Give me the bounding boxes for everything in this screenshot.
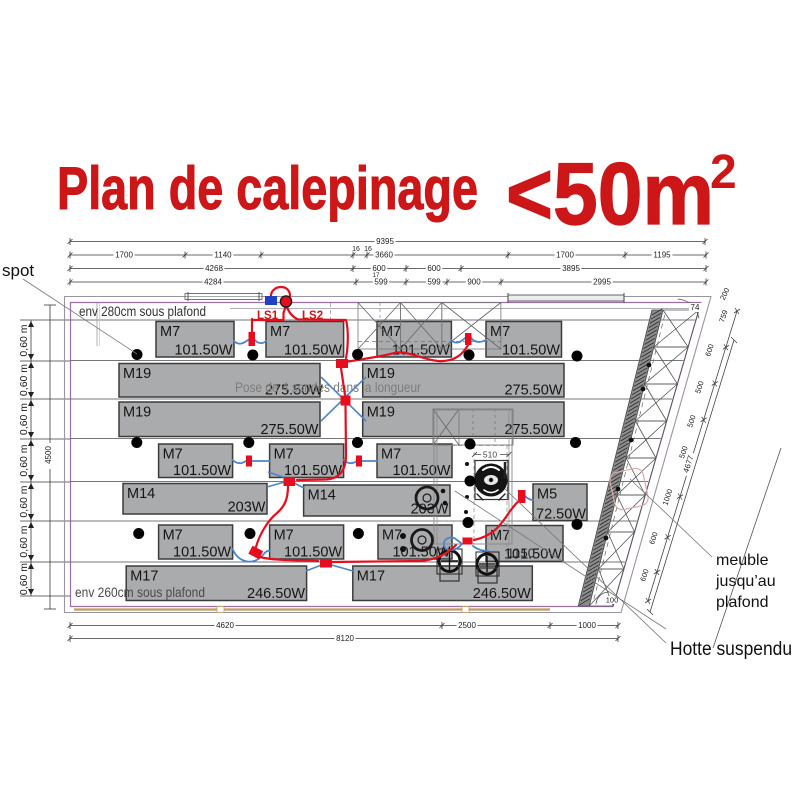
svg-text:0,60 m: 0,60 m [18, 403, 30, 435]
svg-text:1195: 1195 [653, 251, 671, 260]
svg-text:plafond: plafond [716, 594, 769, 611]
svg-text:900: 900 [467, 278, 481, 287]
svg-text:Hotte suspendu: Hotte suspendu [670, 639, 792, 660]
svg-text:jusqu’au: jusqu’au [715, 573, 776, 590]
svg-text:600: 600 [372, 264, 386, 273]
svg-text:0,60 m: 0,60 m [18, 563, 30, 595]
svg-text:101.50W: 101.50W [392, 463, 450, 479]
svg-text:4284: 4284 [204, 278, 222, 287]
svg-text:101.50W: 101.50W [502, 343, 560, 359]
svg-text:16: 16 [352, 246, 360, 253]
svg-text:M19: M19 [123, 366, 151, 382]
svg-text:env 280cm sous plafond: env 280cm sous plafond [79, 304, 206, 319]
svg-text:1700: 1700 [556, 251, 574, 260]
svg-text:101.50W: 101.50W [284, 343, 342, 359]
svg-text:Pose de 4 sondes dans la longu: Pose de 4 sondes dans la longueur [235, 380, 421, 395]
svg-text:LS2: LS2 [302, 310, 323, 322]
svg-text:101.50W: 101.50W [173, 545, 231, 561]
svg-text:Plan de calepinage: Plan de calepinage [57, 155, 478, 222]
svg-text:2995: 2995 [593, 278, 611, 287]
svg-text:M14: M14 [127, 486, 155, 502]
svg-text:599: 599 [427, 278, 441, 287]
svg-text:M19: M19 [123, 405, 151, 421]
svg-text:16: 16 [364, 246, 372, 253]
svg-text:1000: 1000 [578, 621, 596, 630]
svg-text:M17: M17 [130, 569, 158, 585]
svg-text:74: 74 [691, 303, 700, 312]
svg-text:2500: 2500 [458, 621, 476, 630]
svg-text:101.50W: 101.50W [284, 545, 342, 561]
svg-text:M17: M17 [357, 569, 385, 585]
svg-text:M7: M7 [274, 528, 294, 544]
svg-text:M7: M7 [274, 447, 294, 463]
svg-text:0,60 m: 0,60 m [18, 444, 30, 476]
svg-text:spot: spot [2, 261, 34, 280]
svg-text:LS1: LS1 [257, 310, 279, 322]
svg-text:4500: 4500 [44, 446, 53, 464]
svg-text:M7: M7 [381, 324, 401, 340]
svg-text:4268: 4268 [205, 264, 223, 273]
svg-text:246.50W: 246.50W [473, 586, 531, 602]
svg-text:600: 600 [427, 264, 441, 273]
svg-text:M7: M7 [490, 324, 510, 340]
svg-text:M19: M19 [367, 405, 395, 421]
svg-text:17: 17 [373, 273, 380, 279]
svg-text:510: 510 [483, 450, 497, 460]
svg-text:env 260cm sous plafond: env 260cm sous plafond [75, 585, 205, 600]
svg-text:101.50W: 101.50W [174, 343, 232, 359]
svg-text:9395: 9395 [376, 237, 394, 246]
svg-text:203W: 203W [228, 500, 266, 516]
svg-text:3895: 3895 [562, 264, 580, 273]
svg-text:meuble: meuble [716, 552, 769, 569]
svg-text:4620: 4620 [216, 621, 234, 630]
svg-text:M5: M5 [537, 487, 557, 503]
svg-text:3660: 3660 [375, 251, 393, 260]
svg-text:0,60 m: 0,60 m [18, 485, 30, 517]
svg-text:<50m: <50m [506, 144, 714, 243]
svg-text:275.50W: 275.50W [504, 383, 562, 399]
svg-text:M7: M7 [382, 528, 402, 544]
svg-text:M7: M7 [270, 324, 290, 340]
svg-text:8120: 8120 [336, 634, 354, 643]
svg-text:1140: 1140 [214, 251, 232, 260]
svg-text:M7: M7 [381, 447, 401, 463]
svg-text:1700: 1700 [115, 251, 133, 260]
svg-text:M7: M7 [163, 528, 183, 544]
svg-text:2: 2 [710, 146, 737, 199]
svg-text:0,60 m: 0,60 m [18, 364, 30, 396]
svg-text:M7: M7 [160, 324, 180, 340]
svg-text:246.50W: 246.50W [247, 586, 305, 602]
svg-text:275.50W: 275.50W [260, 422, 318, 438]
svg-text:0,60 m: 0,60 m [18, 324, 30, 356]
svg-text:101.50W: 101.50W [173, 463, 231, 479]
svg-text:1150: 1150 [507, 546, 535, 561]
svg-text:101.50W: 101.50W [284, 463, 342, 479]
svg-text:0,60 m: 0,60 m [18, 525, 30, 557]
svg-text:M14: M14 [308, 488, 336, 504]
svg-text:M7: M7 [163, 447, 183, 463]
